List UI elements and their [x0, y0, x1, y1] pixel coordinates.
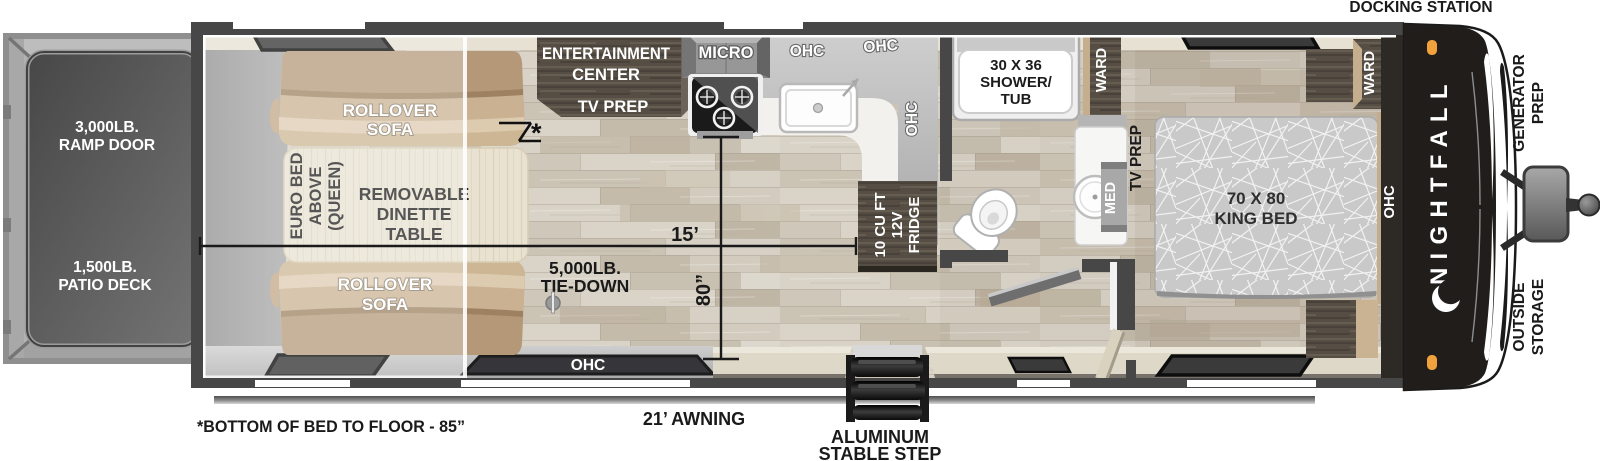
svg-text:PATIO DECK: PATIO DECK — [58, 277, 152, 294]
svg-text:10 CU FT: 10 CU FT — [872, 192, 889, 257]
svg-text:KING BED: KING BED — [1214, 209, 1297, 228]
svg-text:OHC: OHC — [1381, 185, 1398, 219]
svg-text:STABLE STEP: STABLE STEP — [819, 444, 942, 461]
svg-text:NIGHTFALL: NIGHTFALL — [1426, 81, 1453, 285]
svg-text:15’: 15’ — [671, 224, 699, 246]
svg-text:OHC: OHC — [571, 357, 605, 374]
svg-text:*: * — [531, 118, 542, 148]
svg-text:MICRO: MICRO — [699, 44, 754, 62]
svg-text:WARD: WARD — [1094, 48, 1110, 92]
svg-text:ENTERTAINMENT: ENTERTAINMENT — [542, 45, 670, 63]
svg-text:5,000LB.: 5,000LB. — [549, 258, 621, 278]
svg-text:OUTSIDE: OUTSIDE — [1511, 283, 1528, 352]
svg-text:CENTER: CENTER — [572, 66, 640, 84]
svg-text:STORAGE: STORAGE — [1530, 279, 1547, 355]
svg-text:OHC: OHC — [904, 102, 921, 136]
svg-text:SHOWER/: SHOWER/ — [980, 74, 1053, 91]
svg-text:OHC: OHC — [790, 43, 824, 60]
svg-text:FRIDGE: FRIDGE — [906, 197, 923, 254]
svg-text:OHC: OHC — [863, 37, 899, 56]
svg-text:TV PREP: TV PREP — [1128, 125, 1145, 191]
svg-text:WARD: WARD — [1362, 51, 1378, 95]
svg-text:*BOTTOM OF BED TO FLOOR - 85”: *BOTTOM OF BED TO FLOOR - 85” — [197, 417, 465, 436]
svg-text:1,500LB.: 1,500LB. — [73, 259, 137, 276]
svg-text:GENERATOR: GENERATOR — [1511, 54, 1528, 152]
svg-text:30 X 36: 30 X 36 — [990, 57, 1042, 74]
svg-text:80”: 80” — [693, 274, 715, 306]
svg-text:70 X 80: 70 X 80 — [1227, 189, 1286, 208]
svg-text:TV PREP: TV PREP — [578, 98, 649, 116]
svg-text:3,000LB.: 3,000LB. — [75, 119, 139, 136]
svg-text:12V: 12V — [889, 212, 906, 239]
svg-text:DOCKING STATION: DOCKING STATION — [1349, 0, 1492, 16]
svg-text:21’ AWNING: 21’ AWNING — [643, 409, 745, 429]
svg-text:MED: MED — [1103, 182, 1119, 214]
svg-text:PREP: PREP — [1530, 82, 1547, 124]
svg-text:RAMP DOOR: RAMP DOOR — [59, 137, 155, 154]
svg-text:TUB: TUB — [1001, 91, 1032, 108]
